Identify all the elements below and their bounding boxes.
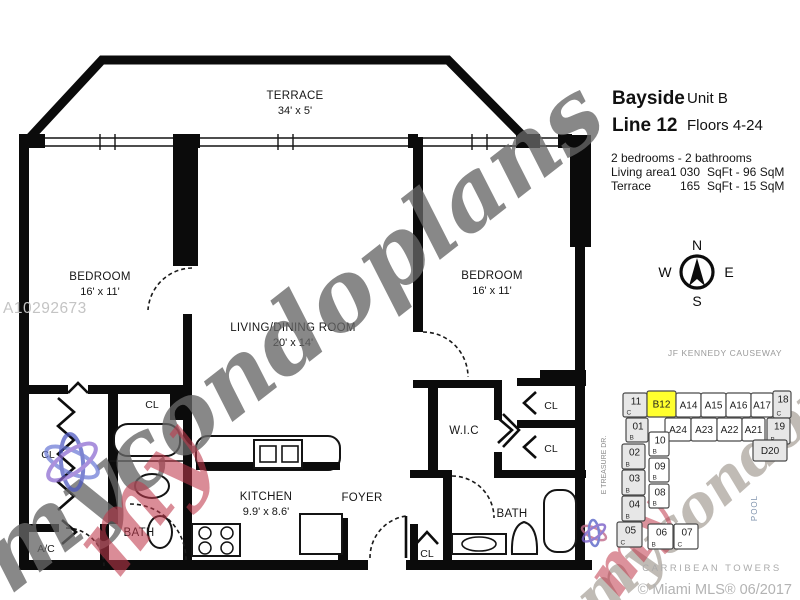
dims-bedroom-left: 16' x 11': [80, 286, 119, 298]
building-footer-name: CARRIBEAN TOWERS: [642, 563, 781, 574]
living-area-value: 1 030: [670, 165, 700, 179]
wall-right-stub: [540, 370, 586, 379]
sitemap-unit-label: 19: [774, 422, 786, 433]
sitemap-unit-09: 09B: [649, 458, 669, 482]
sitemap-unit-label: A16: [730, 401, 748, 412]
sitemap-unit-label: A17: [753, 401, 771, 412]
compass-icon: N S W E: [658, 237, 733, 309]
sitemap-unit-subletter: C: [777, 411, 782, 418]
wall-wic-top: [413, 380, 502, 388]
wall-bottom-right: [406, 560, 592, 570]
terrace-area-units: SqFt - 15 SqM: [707, 179, 784, 193]
sitemap-unit-subletter: C: [621, 540, 626, 547]
listing-id: A10292673: [3, 300, 87, 317]
wall-closets-top: [517, 378, 586, 386]
sitemap-unit-subletter: B: [653, 501, 657, 508]
label-bedroom-left: BEDROOM: [69, 271, 131, 283]
sitemap-unit-B12: B12: [647, 391, 676, 417]
terrace-wall: [24, 60, 529, 144]
floorplan-canvas: TERRACE 34' x 5' BEDROOM 16' x 11' BEDRO…: [0, 0, 800, 600]
sitemap-unit-01: 01B: [626, 418, 648, 442]
pool-label: POOL: [750, 495, 759, 521]
street-left-label: E TREASURE DR.: [601, 436, 608, 495]
label-bath-right: BATH: [496, 508, 527, 520]
compass-n: N: [692, 237, 702, 253]
dims-kitchen: 9.9' x 8.6': [243, 506, 289, 518]
unit-name: Unit B: [687, 90, 728, 107]
toilet-right: [512, 522, 537, 554]
door-arc-bedroom-left: [148, 268, 192, 310]
sitemap-unit-subletter: C: [627, 410, 632, 417]
compass-w: W: [658, 264, 672, 280]
sitemap-unit-D20: D20: [753, 440, 787, 461]
dims-terrace: 34' x 5': [278, 105, 312, 117]
compass-e: E: [724, 264, 733, 280]
dims-bedroom-right: 16' x 11': [472, 285, 511, 297]
wall-wic-left: [428, 380, 438, 478]
wall-closets-mid: [517, 420, 578, 428]
sitemap-unit-label: 06: [656, 528, 668, 539]
sitemap-unit-A21: A21: [742, 418, 765, 441]
kitchen-cabinet: [300, 514, 342, 554]
compass-needle: [689, 258, 705, 286]
sitemap-unit-05: 05C: [617, 522, 642, 547]
door-arc-entry: [370, 516, 406, 558]
sitemap-unit-label: 04: [629, 500, 641, 511]
sitemap-unit-label: B12: [653, 400, 671, 411]
wall-bath-right-top: [494, 470, 586, 478]
sitemap-unit-label: 02: [629, 448, 641, 459]
sitemap-unit-subletter: B: [653, 449, 657, 456]
info-panel: Bayside Unit B Line 12 Floors 4-24 2 bed…: [611, 88, 784, 193]
sitemap-unit-label: A23: [695, 425, 713, 436]
sitemap-unit-label: 11: [631, 397, 642, 408]
compass-s: S: [692, 293, 701, 309]
closet-door-foyer: [416, 532, 438, 544]
wall-wic-right: [494, 380, 502, 420]
sitemap-unit-10: 10B: [649, 432, 669, 456]
bathtub-right: [544, 490, 576, 552]
door-arc-bedroom-right: [423, 332, 468, 377]
sitemap-unit-label: A24: [669, 425, 687, 436]
sitemap-unit-label: 01: [632, 422, 644, 433]
label-foyer: FOYER: [341, 492, 382, 504]
label-kitchen: KITCHEN: [240, 491, 293, 503]
sitemap-unit-subletter: B: [626, 488, 630, 495]
sitemap-unit-11: 11C: [623, 393, 647, 417]
sitemap-unit-label: A21: [745, 425, 763, 436]
wall-bath-right-left: [443, 478, 452, 560]
bed-bath-count: 2 bedrooms - 2 bathrooms: [611, 151, 752, 165]
sitemap-unit-label: A22: [721, 425, 739, 436]
sitemap-unit-06: 06B: [648, 524, 673, 549]
label-bedroom-right: BEDROOM: [461, 270, 523, 282]
sitemap-unit-label: 18: [777, 395, 789, 406]
sitemap-unit-label: 08: [654, 488, 666, 499]
terrace-area-value: 165: [680, 179, 700, 193]
sitemap-unit-subletter: B: [626, 462, 630, 469]
sitemap-unit-08: 08B: [649, 484, 669, 508]
sitemap-unit-subletter: B: [653, 475, 657, 482]
floors-range: Floors 4-24: [687, 117, 763, 134]
sitemap-unit-label: A14: [680, 401, 698, 412]
street-top-label: JF KENNEDY CAUSEWAY: [668, 348, 782, 358]
sitemap-unit-A16: A16: [726, 393, 751, 417]
sitemap-unit-subletter: C: [678, 542, 683, 549]
sitemap-unit-04: 04B: [622, 496, 645, 521]
sitemap-unit-A17: A17: [751, 393, 773, 417]
sitemap-unit-subletter: B: [626, 514, 630, 521]
sitemap-unit-A15: A15: [701, 393, 726, 417]
label-wic: W.I.C: [449, 425, 479, 437]
sitemap-unit-label: 05: [625, 526, 637, 537]
copyright: © Miami MLS® 06/2017: [638, 582, 792, 598]
building-name: Bayside: [612, 88, 685, 109]
sitemap-unit-07: 07C: [674, 524, 698, 549]
label-cl-right-2: CL: [544, 443, 558, 455]
sitemap-unit-label: A15: [705, 401, 723, 412]
terrace-area-label: Terrace: [611, 179, 651, 193]
sitemap-unit-label: D20: [761, 446, 780, 457]
sitemap-unit-label: 03: [629, 474, 641, 485]
sitemap-unit-label: 07: [681, 528, 693, 539]
wall-right-mid: [575, 247, 585, 370]
sitemap-unit-02: 02B: [622, 444, 645, 469]
sitemap-unit-03: 03B: [622, 470, 645, 495]
label-cl-foyer: CL: [420, 548, 434, 560]
door-arc-bath-right: [452, 476, 494, 518]
pillar: [173, 136, 198, 266]
sitemap-unit-subletter: B: [652, 542, 656, 549]
kitchen-sink-bowl: [282, 446, 298, 462]
wall-bedroom-left-bottom: [29, 385, 68, 394]
living-area-units: SqFt - 96 SqM: [707, 165, 784, 179]
closet-door-cl1: [524, 392, 536, 414]
sitemap-unit-label: 09: [654, 462, 666, 473]
sitemap-unit-A22: A22: [717, 418, 742, 441]
sitemap-unit-18: 18C: [773, 391, 791, 418]
wall-bath-right-top: [410, 470, 452, 478]
living-area-label: Living area: [611, 165, 670, 179]
label-cl-right-1: CL: [544, 400, 558, 412]
line-number: Line 12: [612, 115, 677, 136]
sitemap-unit-A23: A23: [691, 418, 717, 441]
closet-door-bedroom-left: [68, 383, 88, 393]
closet-door-cl2: [524, 436, 536, 458]
sitemap-unit-A14: A14: [676, 393, 701, 417]
sitemap-unit-subletter: B: [630, 435, 634, 442]
kitchen-sink-bowl: [260, 446, 276, 462]
sitemap-unit-label: 10: [654, 436, 666, 447]
label-terrace: TERRACE: [266, 90, 323, 102]
